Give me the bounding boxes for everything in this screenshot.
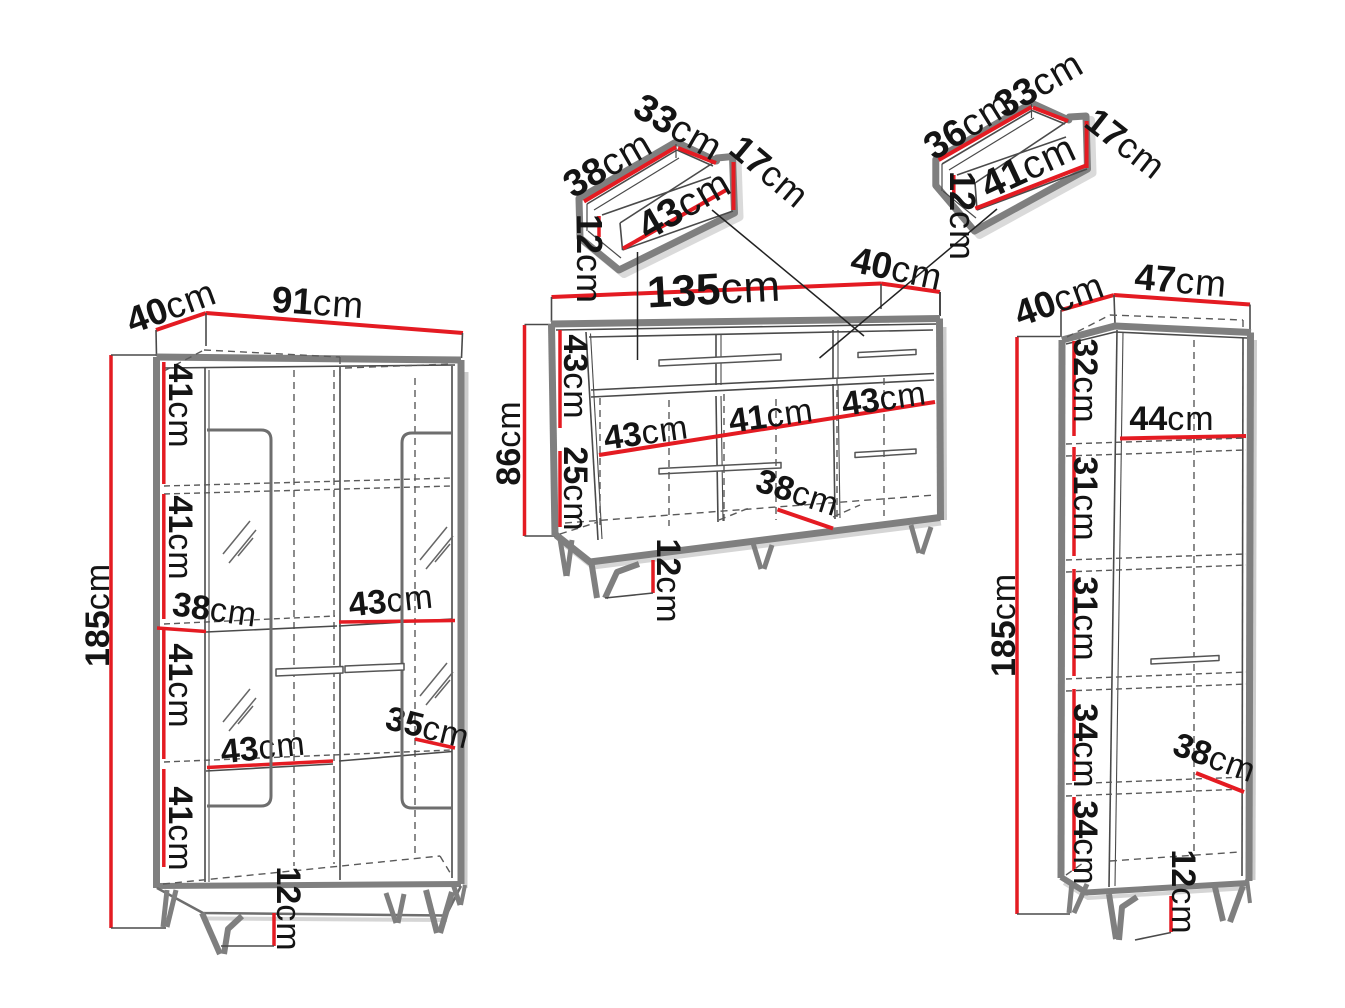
svg-text:34cm: 34cm xyxy=(1066,703,1104,788)
svg-text:12cm: 12cm xyxy=(1164,849,1202,934)
svg-text:185cm: 185cm xyxy=(985,573,1023,677)
svg-text:41cm: 41cm xyxy=(161,363,199,448)
svg-text:43cm: 43cm xyxy=(556,334,594,419)
svg-text:41cm: 41cm xyxy=(161,786,199,871)
svg-text:91cm: 91cm xyxy=(270,279,365,326)
svg-text:34cm: 34cm xyxy=(1066,800,1104,885)
svg-text:41cm: 41cm xyxy=(161,495,199,580)
svg-text:31cm: 31cm xyxy=(1066,456,1104,541)
svg-text:135cm: 135cm xyxy=(646,262,782,318)
svg-text:25cm: 25cm xyxy=(556,446,594,531)
svg-text:185cm: 185cm xyxy=(79,563,117,667)
svg-text:12cm: 12cm xyxy=(569,214,610,304)
svg-text:47cm: 47cm xyxy=(1133,256,1229,305)
svg-text:44cm: 44cm xyxy=(1129,400,1214,438)
svg-text:12cm: 12cm xyxy=(942,171,983,261)
svg-text:12cm: 12cm xyxy=(649,538,687,623)
svg-text:31cm: 31cm xyxy=(1066,576,1104,661)
svg-text:32cm: 32cm xyxy=(1066,338,1104,423)
svg-text:86cm: 86cm xyxy=(490,400,528,485)
svg-text:41cm: 41cm xyxy=(161,643,199,728)
svg-text:12cm: 12cm xyxy=(269,866,307,951)
